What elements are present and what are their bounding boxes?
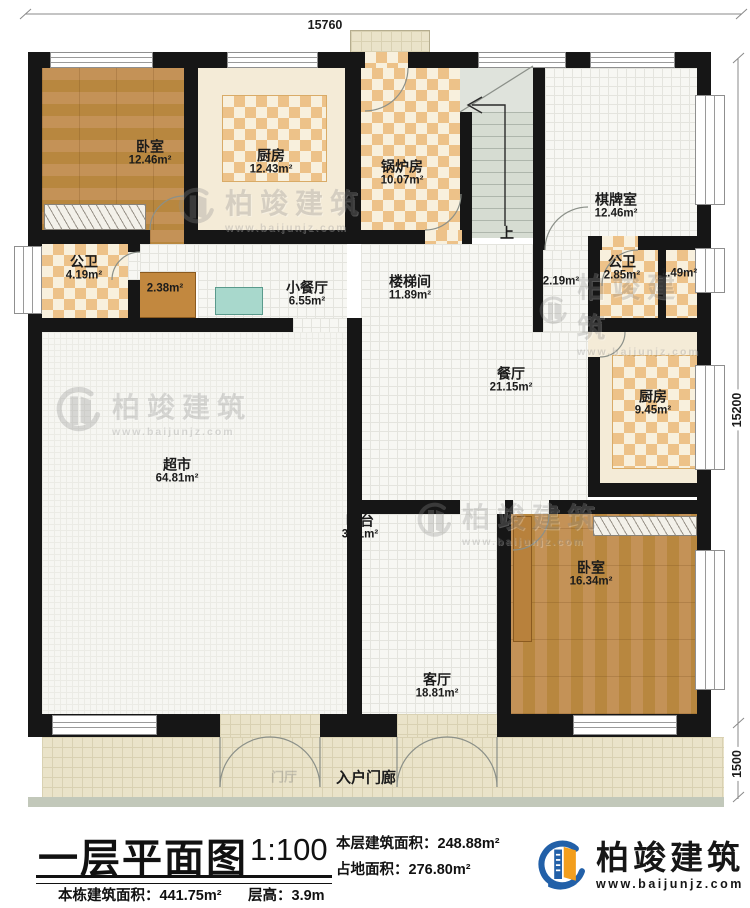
room-label-smalldining: 小餐厅 6.55m² xyxy=(286,279,328,308)
room-label-stairhall: 楼梯间 11.89m² xyxy=(389,273,431,302)
plan-scale: 1:100 xyxy=(250,832,328,868)
room-label-kitchen2: 厨房 9.45m² xyxy=(635,388,671,417)
room-label-kitchen1: 厨房 12.43m² xyxy=(250,147,293,176)
brand-logo: 柏竣建筑 www.baijunjz.com xyxy=(536,838,744,894)
stat-floor-height: 层高：3.9m xyxy=(248,884,325,905)
stair-up-label: 上 xyxy=(500,225,514,241)
room-label-supermarket: 超市 64.81m² xyxy=(156,456,199,485)
room-label-porch: 入户门廊 xyxy=(336,769,396,786)
stat-this-floor-area: 本层建筑面积：248.88m² xyxy=(336,832,500,853)
brand-logo-icon xyxy=(536,838,588,894)
room-label-boiler: 锅炉房 10.07m² xyxy=(381,158,424,187)
room-label-dining: 餐厅 21.15m² xyxy=(490,365,533,394)
dimension-right: 15200 xyxy=(730,390,744,431)
floor-plan-page: ❋ xyxy=(0,0,750,908)
area-label-shower: 1.49m² xyxy=(661,267,697,280)
room-label-bath1: 公卫 4.19m² xyxy=(66,253,102,282)
brand-url: www.baijunjz.com xyxy=(596,877,744,891)
dimension-porch: 1500 xyxy=(730,747,744,781)
room-label-bath2: 公卫 2.85m² xyxy=(604,253,640,282)
area-label-nook: 2.19m² xyxy=(543,275,579,288)
room-label-living: 客厅 18.81m² xyxy=(416,671,459,700)
stat-building-area: 本栋建筑面积：441.75m² xyxy=(58,884,222,905)
title-underline xyxy=(36,875,332,884)
brand-name: 柏竣建筑 xyxy=(596,841,744,874)
room-label-bedroom1: 卧室 12.46m² xyxy=(129,138,172,167)
area-label-closet: 2.38m² xyxy=(147,282,183,295)
room-label-bedroom2: 卧室 16.34m² xyxy=(570,559,613,588)
stair-direction-arrow xyxy=(468,97,505,226)
stat-footprint-area: 占地面积：276.80m² xyxy=(336,858,471,879)
dimension-top: 15760 xyxy=(305,18,346,32)
door-swing-arcs xyxy=(112,66,638,787)
room-label-chessroom: 棋牌室 12.46m² xyxy=(595,191,638,220)
title-block: 一层平面图 1:100 本层建筑面积：248.88m² 占地面积：276.80m… xyxy=(0,818,750,908)
